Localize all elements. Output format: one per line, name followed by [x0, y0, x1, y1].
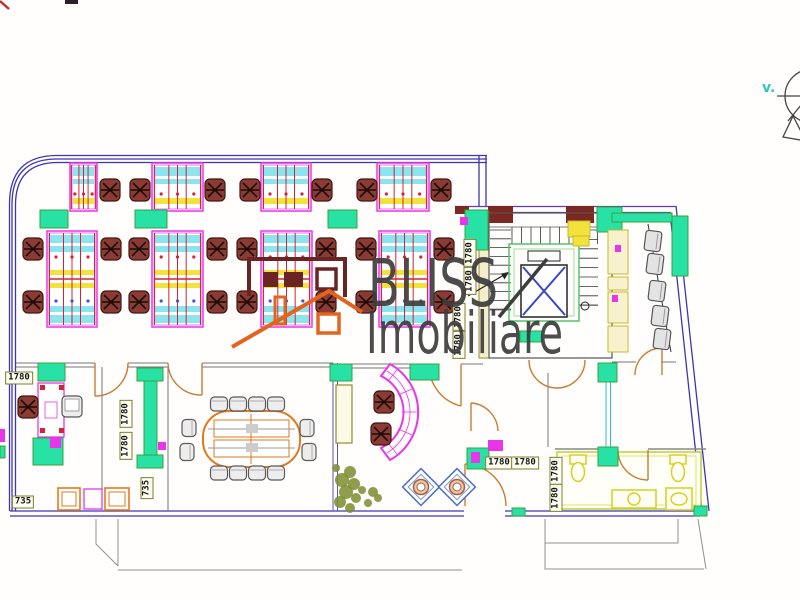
- column: [520, 331, 542, 342]
- column: [330, 364, 352, 381]
- column: [694, 506, 707, 516]
- floorplan-drawing: [0, 0, 800, 600]
- desk-cluster-double: [379, 231, 430, 327]
- plant: [351, 493, 361, 503]
- office-chair: [374, 391, 394, 413]
- column: [612, 213, 672, 222]
- furniture-layer: [0, 163, 707, 516]
- column: [410, 364, 439, 380]
- conference-table: [203, 411, 300, 467]
- magenta-mark: [0, 429, 5, 442]
- column: [328, 210, 357, 228]
- waiting-chair: [644, 230, 662, 252]
- lounge-seats: [58, 488, 129, 510]
- kitchen-unit: [608, 277, 628, 290]
- meeting-chair: [302, 444, 316, 461]
- office-chair: [357, 179, 377, 201]
- meeting-chair: [268, 397, 285, 411]
- desk-cluster-double: [261, 231, 312, 327]
- column: [144, 381, 157, 455]
- column: [512, 508, 525, 516]
- office-chair: [23, 291, 43, 313]
- office-chair: [129, 291, 149, 313]
- office-chair: [237, 238, 257, 260]
- office-chair: [316, 238, 336, 260]
- magenta-mark: [460, 217, 468, 225]
- plant: [334, 496, 346, 508]
- office-chair: [237, 291, 257, 313]
- plant: [364, 499, 372, 507]
- waiting-chair: [646, 253, 664, 275]
- magenta-mark: [612, 295, 618, 302]
- magenta-mark: [471, 452, 480, 463]
- desk-cluster: [261, 163, 311, 211]
- meeting-chair: [249, 397, 266, 411]
- plant: [345, 503, 355, 513]
- desk-cluster: [377, 163, 429, 211]
- office-chair: [431, 179, 451, 201]
- waiting-chair: [653, 328, 671, 350]
- waiting-chair: [651, 305, 669, 327]
- column: [137, 368, 163, 381]
- meeting-chair: [249, 466, 266, 480]
- desk-cluster-double: [152, 231, 203, 327]
- office-chair: [18, 396, 38, 418]
- desk-cluster-double: [47, 231, 97, 327]
- office-chair: [205, 179, 225, 201]
- left-office-desk: [38, 383, 64, 437]
- counter-unit: [573, 236, 589, 246]
- waiting-chair: [648, 280, 666, 302]
- office-chair: [101, 238, 121, 260]
- plant: [358, 486, 366, 494]
- office-chair: [356, 291, 376, 313]
- office-chair: [434, 238, 454, 260]
- column: [598, 363, 617, 382]
- desk-cluster: [152, 163, 203, 211]
- office-chair: [240, 179, 260, 201]
- plant: [332, 464, 340, 472]
- office-chair: [207, 238, 227, 260]
- plant: [374, 494, 382, 502]
- counter-unit: [568, 221, 590, 237]
- elevator: [509, 244, 579, 321]
- plant: [335, 473, 349, 487]
- column: [0, 446, 5, 458]
- office-chair: [434, 291, 454, 313]
- magenta-mark: [488, 440, 503, 451]
- meeting-chair: [211, 466, 228, 480]
- column: [672, 216, 688, 276]
- edge-marks: [0, 0, 78, 9]
- desk-cluster: [70, 163, 97, 211]
- office-chair: [356, 238, 376, 260]
- column: [465, 210, 488, 250]
- meeting-chair: [180, 444, 194, 461]
- terrace-outline: [96, 519, 706, 570]
- meeting-chair: [300, 420, 314, 437]
- meeting-chair: [268, 466, 285, 480]
- printer-stand: [62, 396, 82, 417]
- diamond-stool: [439, 469, 476, 506]
- magenta-mark: [615, 245, 621, 252]
- column: [135, 210, 167, 228]
- office-chair: [312, 179, 332, 201]
- column: [598, 447, 618, 466]
- meeting-chair: [230, 466, 247, 480]
- magenta-mark: [158, 442, 166, 450]
- meeting-chair: [182, 420, 196, 437]
- kitchen-unit: [608, 326, 628, 352]
- meeting-chair: [230, 397, 247, 411]
- office-chair: [316, 291, 336, 313]
- office-chair: [130, 179, 150, 201]
- diamond-stool: [403, 469, 440, 506]
- meeting-chair: [211, 397, 228, 411]
- magenta-mark: [50, 437, 61, 448]
- office-chair: [101, 291, 121, 313]
- office-chair: [23, 238, 43, 260]
- floorplan-canvas: 1780735735178017801780178017801780178017…: [0, 0, 800, 600]
- office-chair: [129, 238, 149, 260]
- column: [38, 363, 65, 381]
- office-chair: [207, 291, 227, 313]
- column: [137, 455, 163, 468]
- cabinet: [336, 385, 352, 443]
- office-chair: [100, 179, 120, 201]
- column: [40, 210, 68, 228]
- office-chair: [371, 423, 391, 445]
